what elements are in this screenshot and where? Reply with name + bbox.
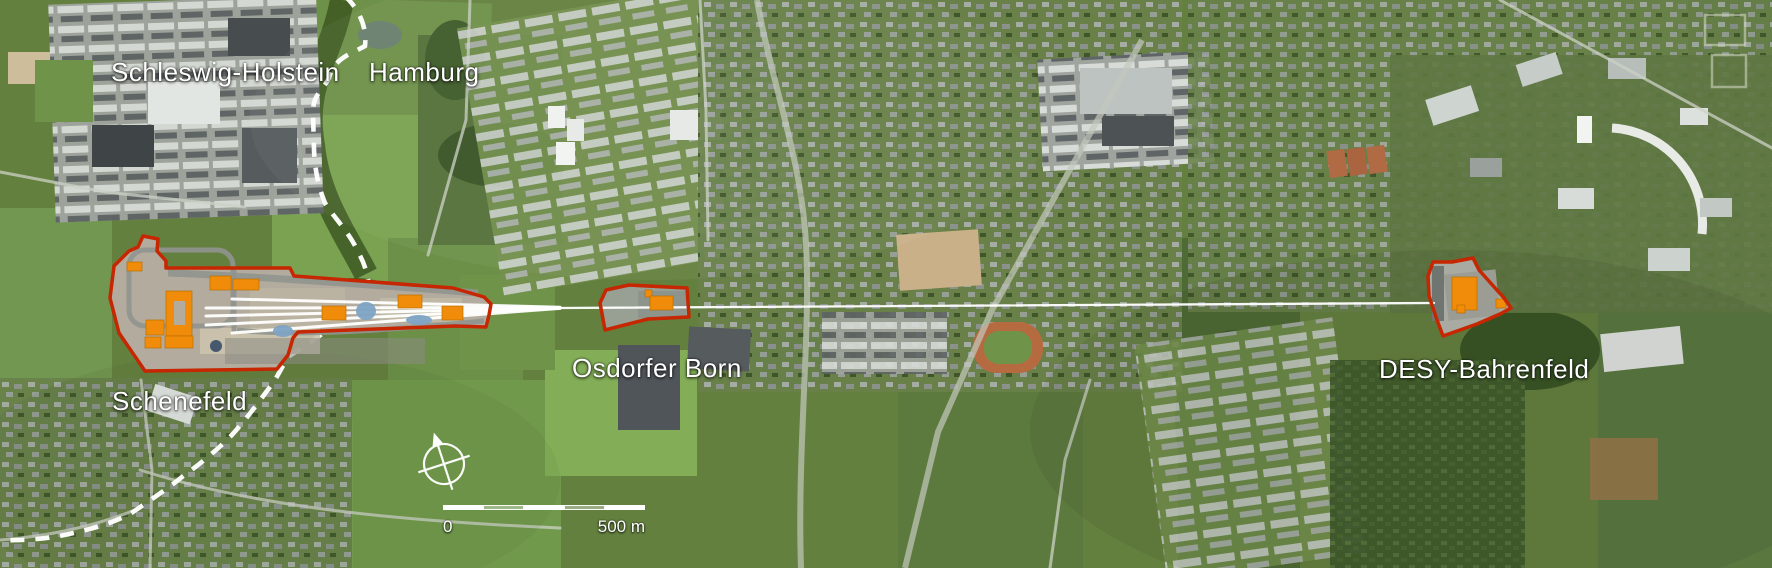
scale-segment xyxy=(524,505,564,510)
map-scale-bar: 0 500 m xyxy=(443,505,645,537)
scale-zero-label: 0 xyxy=(443,517,452,537)
scale-segment xyxy=(605,505,645,510)
scale-segment xyxy=(483,505,523,510)
scale-segment xyxy=(443,505,483,510)
label-schleswig-holstein: Schleswig-Holstein xyxy=(111,57,340,88)
label-schenefeld: Schenefeld xyxy=(112,386,247,417)
label-hamburg: Hamburg xyxy=(369,57,479,88)
scale-bar-segments xyxy=(443,505,645,510)
label-desy-bahrenfeld: DESY-Bahrenfeld xyxy=(1379,354,1589,385)
satellite-map: Schleswig-Holstein Hamburg Schenefeld Os… xyxy=(0,0,1772,568)
scale-segment xyxy=(564,505,604,510)
scale-max-label: 500 m xyxy=(598,517,645,537)
label-osdorfer-born: Osdorfer Born xyxy=(572,353,742,384)
